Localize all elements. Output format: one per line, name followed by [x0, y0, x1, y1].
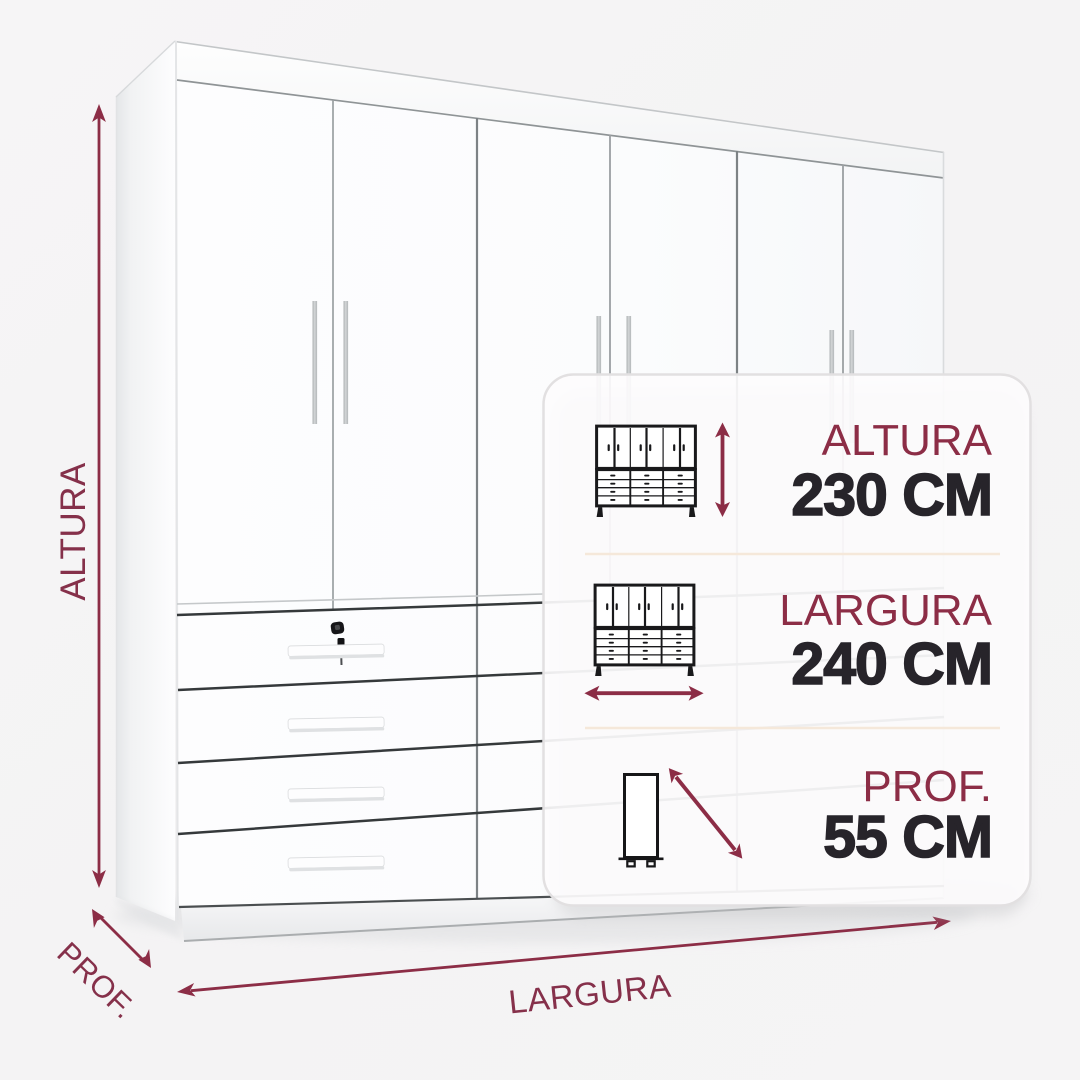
svg-text:240 CM: 240 CM [791, 631, 992, 697]
svg-text:55 CM: 55 CM [823, 804, 992, 870]
svg-text:ALTURA: ALTURA [822, 416, 993, 465]
svg-text:LARGURA: LARGURA [779, 586, 992, 635]
svg-text:230 CM: 230 CM [791, 462, 992, 528]
svg-text:ALTURA: ALTURA [54, 462, 93, 601]
